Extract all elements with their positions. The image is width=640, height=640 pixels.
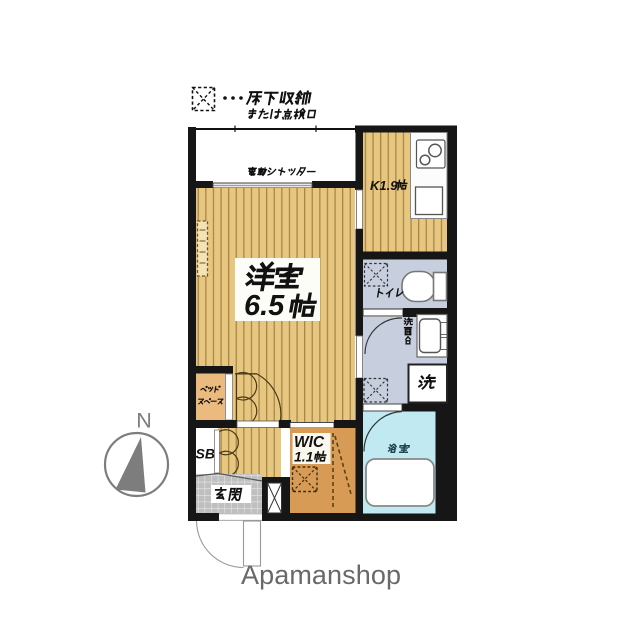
svg-text:1.1: 1.1 [294, 449, 314, 465]
svg-text:Apamanshop: Apamanshop [241, 560, 401, 590]
svg-text:N: N [136, 409, 152, 433]
svg-text:6.5: 6.5 [244, 290, 285, 322]
svg-text:SB: SB [196, 446, 215, 462]
svg-text:K1.9: K1.9 [370, 178, 398, 193]
